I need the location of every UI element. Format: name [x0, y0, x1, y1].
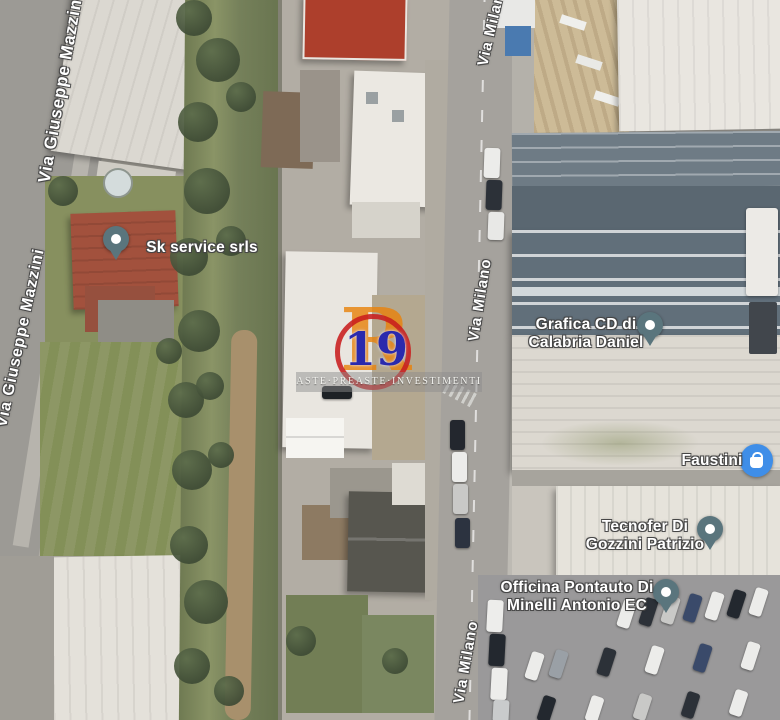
- tarp: [505, 26, 531, 56]
- poi-label-sk-service[interactable]: Sk service srls: [146, 239, 258, 257]
- car: [455, 518, 470, 548]
- tree: [176, 0, 212, 36]
- map-pin-icon[interactable]: [103, 226, 129, 252]
- building-roof: [512, 486, 556, 578]
- tree: [214, 676, 244, 706]
- container: [749, 302, 777, 354]
- lawn: [40, 342, 190, 556]
- tree: [286, 626, 316, 656]
- building-roof-dark: [347, 491, 435, 592]
- poi-label-text: Officina Pontauto Di: [501, 579, 654, 597]
- car: [453, 484, 468, 514]
- tree: [170, 526, 208, 564]
- building-roof: [352, 202, 420, 238]
- tree: [184, 580, 228, 624]
- car: [492, 700, 509, 720]
- ground: [0, 556, 54, 720]
- truck: [746, 208, 778, 296]
- roof-walkway: [512, 287, 780, 296]
- car: [450, 420, 465, 450]
- poi-label-grafica[interactable]: Grafica CD di Calabria Daniel: [529, 316, 644, 352]
- poi-label-officina[interactable]: Officina Pontauto Di Minelli Antonio EC: [501, 579, 654, 615]
- shed-roof: [300, 70, 340, 162]
- tree: [196, 38, 240, 82]
- car: [490, 668, 508, 701]
- poi-label-tecnofer[interactable]: Tecnofer Di Gozzini Patrizio: [586, 518, 705, 554]
- map-pin-icon[interactable]: [653, 579, 679, 605]
- poi-label-text: Grafica CD di: [529, 316, 644, 334]
- tree: [226, 82, 256, 112]
- building-roof-red: [302, 0, 407, 61]
- poi-label-text: Minelli Antonio EC: [501, 597, 654, 615]
- satellite-map[interactable]: Via Giuseppe Mazzini Via Giuseppe Mazzin…: [0, 0, 780, 720]
- car: [483, 148, 500, 179]
- poi-label-text: Faustini: [681, 452, 742, 470]
- pool: [103, 168, 133, 198]
- tree: [172, 450, 212, 490]
- tree: [156, 338, 182, 364]
- building-roof-blue: [512, 186, 780, 233]
- car: [488, 212, 505, 241]
- poi-label-text: Calabria Daniel: [529, 334, 644, 352]
- rooftop-unit: [392, 110, 404, 122]
- poi-label-text: Sk service srls: [146, 239, 258, 257]
- building-roof-blue: [512, 131, 780, 188]
- car: [485, 180, 502, 211]
- tree: [174, 648, 210, 684]
- roof-stain: [540, 420, 700, 466]
- tree: [196, 372, 224, 400]
- poi-label-text: Gozzini Patrizio: [586, 536, 705, 554]
- shopping-bag-icon[interactable]: [740, 444, 773, 477]
- tree: [382, 648, 408, 674]
- poi-label-faustini[interactable]: Faustini: [681, 452, 742, 470]
- poi-label-text: Tecnofer Di: [586, 518, 705, 536]
- tree: [184, 168, 230, 214]
- watermark-lot-number: 19: [344, 326, 408, 372]
- car: [488, 634, 506, 667]
- building-roof: [617, 0, 780, 131]
- building-gable: [286, 418, 344, 458]
- tree: [208, 442, 234, 468]
- watermark-banner: ASTE·PREASTE·INVESTIMENTI: [296, 372, 482, 392]
- tree: [178, 310, 220, 352]
- rooftop-unit: [366, 92, 378, 104]
- tree: [178, 102, 218, 142]
- car: [452, 452, 467, 482]
